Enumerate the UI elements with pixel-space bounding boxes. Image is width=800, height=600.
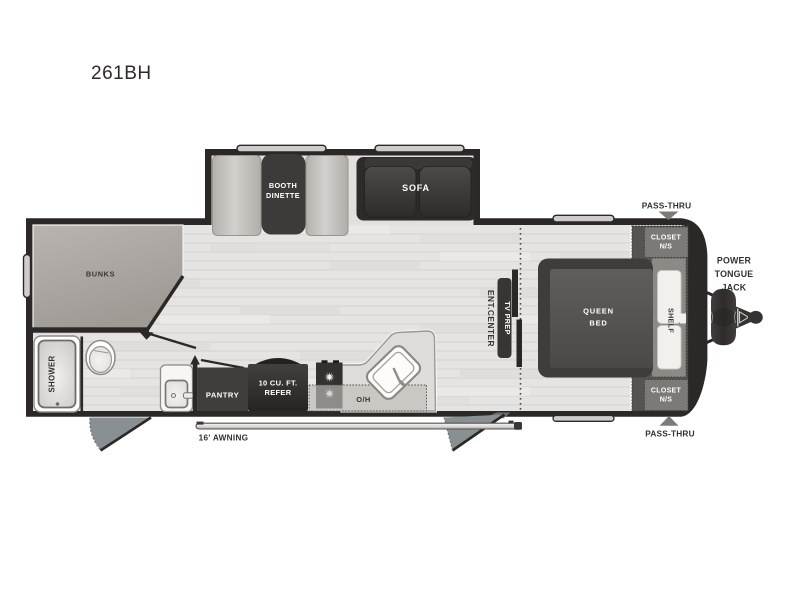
- svg-text:DINETTE: DINETTE: [266, 191, 300, 200]
- svg-text:10 CU. FT.: 10 CU. FT.: [259, 379, 298, 388]
- svg-text:QUEEN: QUEEN: [583, 307, 614, 316]
- svg-text:BUNKS: BUNKS: [86, 270, 115, 279]
- svg-text:N/S: N/S: [660, 244, 673, 251]
- svg-text:O/H: O/H: [356, 395, 371, 404]
- svg-text:PASS-THRU: PASS-THRU: [642, 201, 692, 211]
- svg-text:N/S: N/S: [660, 397, 673, 404]
- svg-text:SOFA: SOFA: [402, 183, 430, 193]
- svg-text:ENT.CENTER: ENT.CENTER: [486, 290, 496, 347]
- svg-text:CLOSET: CLOSET: [651, 235, 682, 242]
- svg-text:TV PREP: TV PREP: [503, 301, 512, 335]
- svg-text:BED: BED: [589, 319, 607, 328]
- svg-text:POWER: POWER: [717, 256, 752, 266]
- svg-text:TONGUE: TONGUE: [715, 269, 754, 279]
- svg-text:REFER: REFER: [265, 388, 292, 397]
- svg-text:SHELF: SHELF: [667, 308, 676, 333]
- svg-text:BOOTH: BOOTH: [269, 181, 297, 190]
- svg-text:261BH: 261BH: [91, 63, 152, 84]
- svg-text:SHOWER: SHOWER: [48, 355, 57, 392]
- svg-text:CLOSET: CLOSET: [651, 388, 682, 395]
- svg-text:16' AWNING: 16' AWNING: [199, 434, 249, 443]
- svg-text:PANTRY: PANTRY: [206, 391, 239, 400]
- svg-text:PASS-THRU: PASS-THRU: [645, 429, 695, 439]
